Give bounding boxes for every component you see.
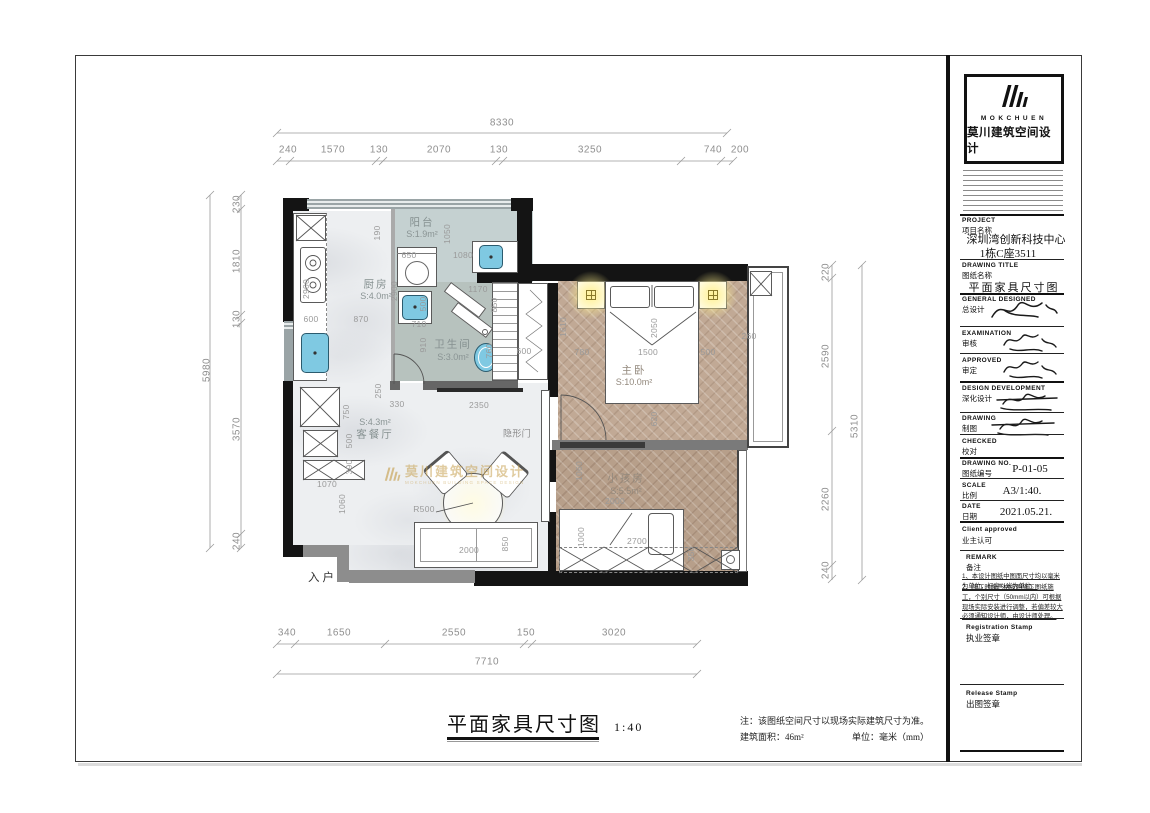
scale-value: A3/1:40. — [1003, 485, 1042, 497]
dim-label: 240 — [821, 561, 832, 579]
signature-general-designed — [988, 297, 1060, 325]
dim-label: 240 — [232, 532, 243, 550]
title-underline-thin — [447, 741, 599, 742]
field-label: DATE — [962, 503, 981, 510]
dim-label: 1050 — [442, 224, 452, 244]
dim-label: 200 — [731, 145, 749, 156]
dim-label: 870 — [353, 314, 368, 324]
separator — [960, 353, 1064, 354]
separator — [960, 750, 1064, 752]
room-name-kitchen: 厨房 — [364, 277, 389, 292]
field-label: DRAWING TITLE — [962, 262, 1018, 269]
dim-chain-right — [820, 258, 875, 588]
separator — [960, 618, 1064, 619]
room-name-living-dining: 客餐厅 — [356, 427, 394, 442]
separator — [960, 326, 1064, 327]
separator — [960, 293, 1064, 295]
field-label-cn: 深化设计 — [962, 393, 992, 404]
dim-label: 3020 — [602, 628, 626, 639]
room-name-kids-room: 小孩房 — [607, 471, 645, 486]
dim-label: 1610 — [558, 317, 568, 337]
dim-label: 2900 — [301, 279, 311, 299]
room-name-bathroom: 卫生间 — [434, 337, 472, 352]
dim-label: 500 — [344, 433, 354, 448]
dim-label: 750 — [341, 404, 351, 419]
dim-label: 600 — [516, 346, 531, 356]
watermark: 莫川建筑空间设计 MOKCHUEN BUILDING SPACE DESIGN — [383, 461, 525, 485]
dim-label: 130 — [490, 145, 508, 156]
room-area-kitchen: S:4.0m² — [360, 291, 392, 301]
dim-label: 150 — [517, 628, 535, 639]
dim-label: 1170 — [468, 284, 487, 294]
dim-label: 1060 — [574, 461, 584, 481]
separator — [960, 550, 1064, 551]
plan-linework — [280, 195, 800, 595]
entrance-label: 入户 — [308, 569, 337, 585]
separator — [960, 259, 1064, 260]
date-value: 2021.05.21. — [1000, 506, 1052, 518]
field-label-cn: 总设计 — [962, 304, 985, 315]
dim-label: 2050 — [649, 318, 659, 338]
field-label: REMARK — [966, 554, 997, 561]
footer-area: 建筑面积：46m² — [740, 730, 804, 743]
dim-label: 350 — [686, 546, 696, 561]
dim-label: 1570 — [321, 145, 345, 156]
dim-label: 1000 — [576, 527, 586, 547]
dim-label: 240 — [279, 145, 297, 156]
room-area-kids-room: S:5.5m² — [610, 486, 642, 496]
footer-note: 注：该图纸空间尺寸以现场实际建筑尺寸为准。 — [740, 714, 929, 727]
dim-label: 760 — [484, 343, 494, 358]
dim-label: 1070 — [317, 479, 337, 489]
dim-label: 850 — [500, 536, 510, 551]
separator — [960, 381, 1064, 383]
dim-label: 1060 — [337, 494, 347, 514]
field-label-cn: 执业签章 — [966, 632, 1000, 644]
dim-label: 650 — [401, 250, 416, 260]
dim-label: 2000 — [605, 496, 625, 506]
field-label: Registration Stamp — [966, 624, 1033, 631]
dim-label: 5310 — [850, 414, 861, 438]
footer-unit: 单位：毫米（mm） — [852, 730, 929, 743]
title-underline — [447, 737, 599, 740]
sheet-shadow — [78, 763, 1082, 766]
field-label-cn: 制图 — [962, 423, 977, 434]
dim-label: 1650 — [327, 628, 351, 639]
dim-label: 220 — [821, 263, 832, 281]
mokchuen-logo — [999, 78, 1029, 112]
field-label: CHECKED — [962, 438, 997, 445]
field-label: SCALE — [962, 482, 986, 489]
footer-title-row: 平面家具尺寸图 1:40 — [447, 708, 643, 737]
dim-label: 600 — [303, 314, 318, 324]
signature-design-development — [993, 388, 1065, 412]
dim-label: 190 — [372, 225, 382, 240]
footer-scale: 1:40 — [614, 720, 643, 734]
watermark-cn: 莫川建筑空间设计 — [405, 461, 525, 480]
dim-label: 2590 — [821, 344, 832, 368]
dim-label: 2700 — [627, 536, 647, 546]
field-label-cn: 审定 — [962, 365, 977, 376]
room-area-bathroom: S:3.0m² — [437, 352, 469, 362]
dim-label: 740 — [704, 145, 722, 156]
dim-label: R500 — [413, 504, 435, 514]
field-label-cn: 出图签章 — [966, 698, 1000, 710]
dim-label: 2070 — [427, 145, 451, 156]
dim-label: 330 — [389, 399, 404, 409]
room-area-living-dining: S:4.3m² — [359, 417, 391, 427]
dim-label: 130 — [232, 310, 243, 328]
footer-title: 平面家具尺寸图 — [447, 714, 601, 736]
field-label: APPROVED — [962, 357, 1002, 364]
field-label: Client approved — [962, 526, 1017, 533]
dim-label: 390 — [344, 459, 354, 474]
room-area-balcony: S:1.9m² — [406, 229, 438, 239]
field-label: PROJECT — [962, 217, 996, 224]
dim-label: 500 — [700, 347, 715, 357]
dim-label: 230 — [232, 195, 243, 213]
dim-label: 130 — [370, 145, 388, 156]
dim-label: 1810 — [232, 249, 243, 273]
separator — [960, 684, 1064, 685]
separator — [960, 457, 1064, 459]
dim-label: 1080 — [453, 250, 473, 260]
title-block-divider — [946, 55, 950, 762]
separator — [960, 478, 1064, 479]
notes-ruled-lines — [963, 170, 1063, 214]
dim-label: 2550 — [442, 628, 466, 639]
dim-label: 5980 — [202, 358, 213, 382]
dim-label: 7710 — [475, 657, 499, 668]
signature-examination — [998, 329, 1060, 355]
dim-label: 250 — [373, 383, 383, 398]
field-label: DRAWING NO. — [962, 460, 1011, 467]
field-label: Release Stamp — [966, 690, 1017, 697]
dim-label: 260 — [741, 331, 756, 341]
watermark-en: MOKCHUEN BUILDING SPACE DESIGN — [405, 480, 525, 485]
separator — [960, 521, 1064, 523]
brand-en: MOKCHUEN — [981, 115, 1047, 122]
dim-label: 1500 — [638, 347, 658, 357]
logo-box: MOKCHUEN 莫川建筑空间设计 — [964, 74, 1064, 164]
field-label-cn: 业主认可 — [962, 535, 992, 546]
dim-label: 2350 — [469, 400, 489, 410]
separator — [960, 214, 1064, 216]
remark-note-2: 2、施工时须严格按照施工图纸施工，个别尺寸（50mm以内）可根据现场实际安装进行… — [962, 583, 1064, 622]
dim-label: 500 — [418, 296, 428, 311]
dim-label: 850 — [489, 297, 499, 312]
dim-label: 620 — [649, 411, 659, 426]
room-name-balcony: 阳台 — [410, 215, 435, 230]
dim-label: 340 — [278, 628, 296, 639]
hidden-door-label: 隐形门 — [503, 427, 531, 440]
dim-label: 710 — [411, 319, 426, 329]
dim-label: 2260 — [821, 487, 832, 511]
room-name-master-bedroom: 主卧 — [622, 363, 647, 378]
dim-label: 910 — [418, 337, 428, 352]
drawing-no-value: P-01-05 — [1012, 463, 1047, 475]
brand-cn: 莫川建筑空间设计 — [967, 124, 1061, 156]
dim-label: 2000 — [459, 545, 479, 555]
dim-label: 3570 — [232, 417, 243, 441]
dim-label: 8330 — [490, 118, 514, 129]
room-area-master-bedroom: S:10.0m² — [616, 377, 653, 387]
separator — [960, 434, 1064, 435]
separator — [960, 500, 1064, 501]
field-label-cn: 审核 — [962, 338, 977, 349]
dim-label: 3250 — [578, 145, 602, 156]
mokchuen-logo-icon — [383, 465, 401, 482]
signature-approved — [998, 356, 1060, 382]
dim-label: 780 — [574, 347, 589, 357]
field-label-cn: 校对 — [962, 446, 977, 457]
